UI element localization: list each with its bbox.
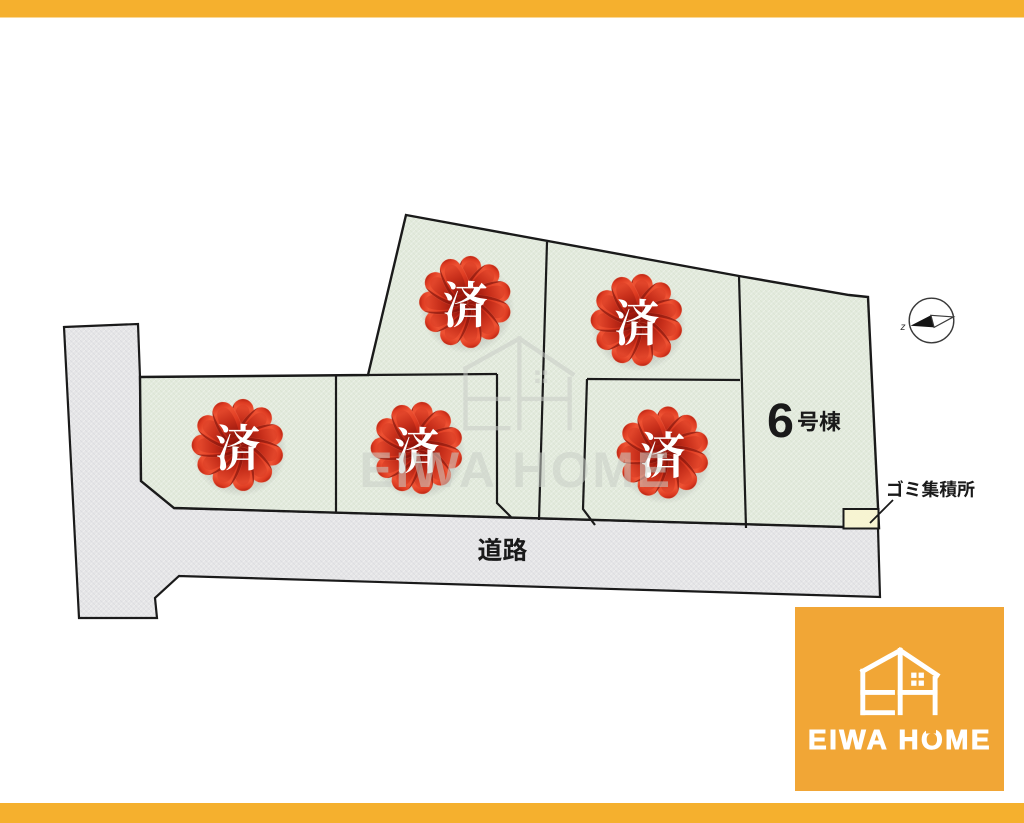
svg-text:z: z xyxy=(900,322,906,333)
svg-text:EIWA HOME: EIWA HOME xyxy=(359,442,672,498)
svg-text:EIWA HOME: EIWA HOME xyxy=(808,724,992,755)
svg-text:6: 6 xyxy=(767,394,794,448)
